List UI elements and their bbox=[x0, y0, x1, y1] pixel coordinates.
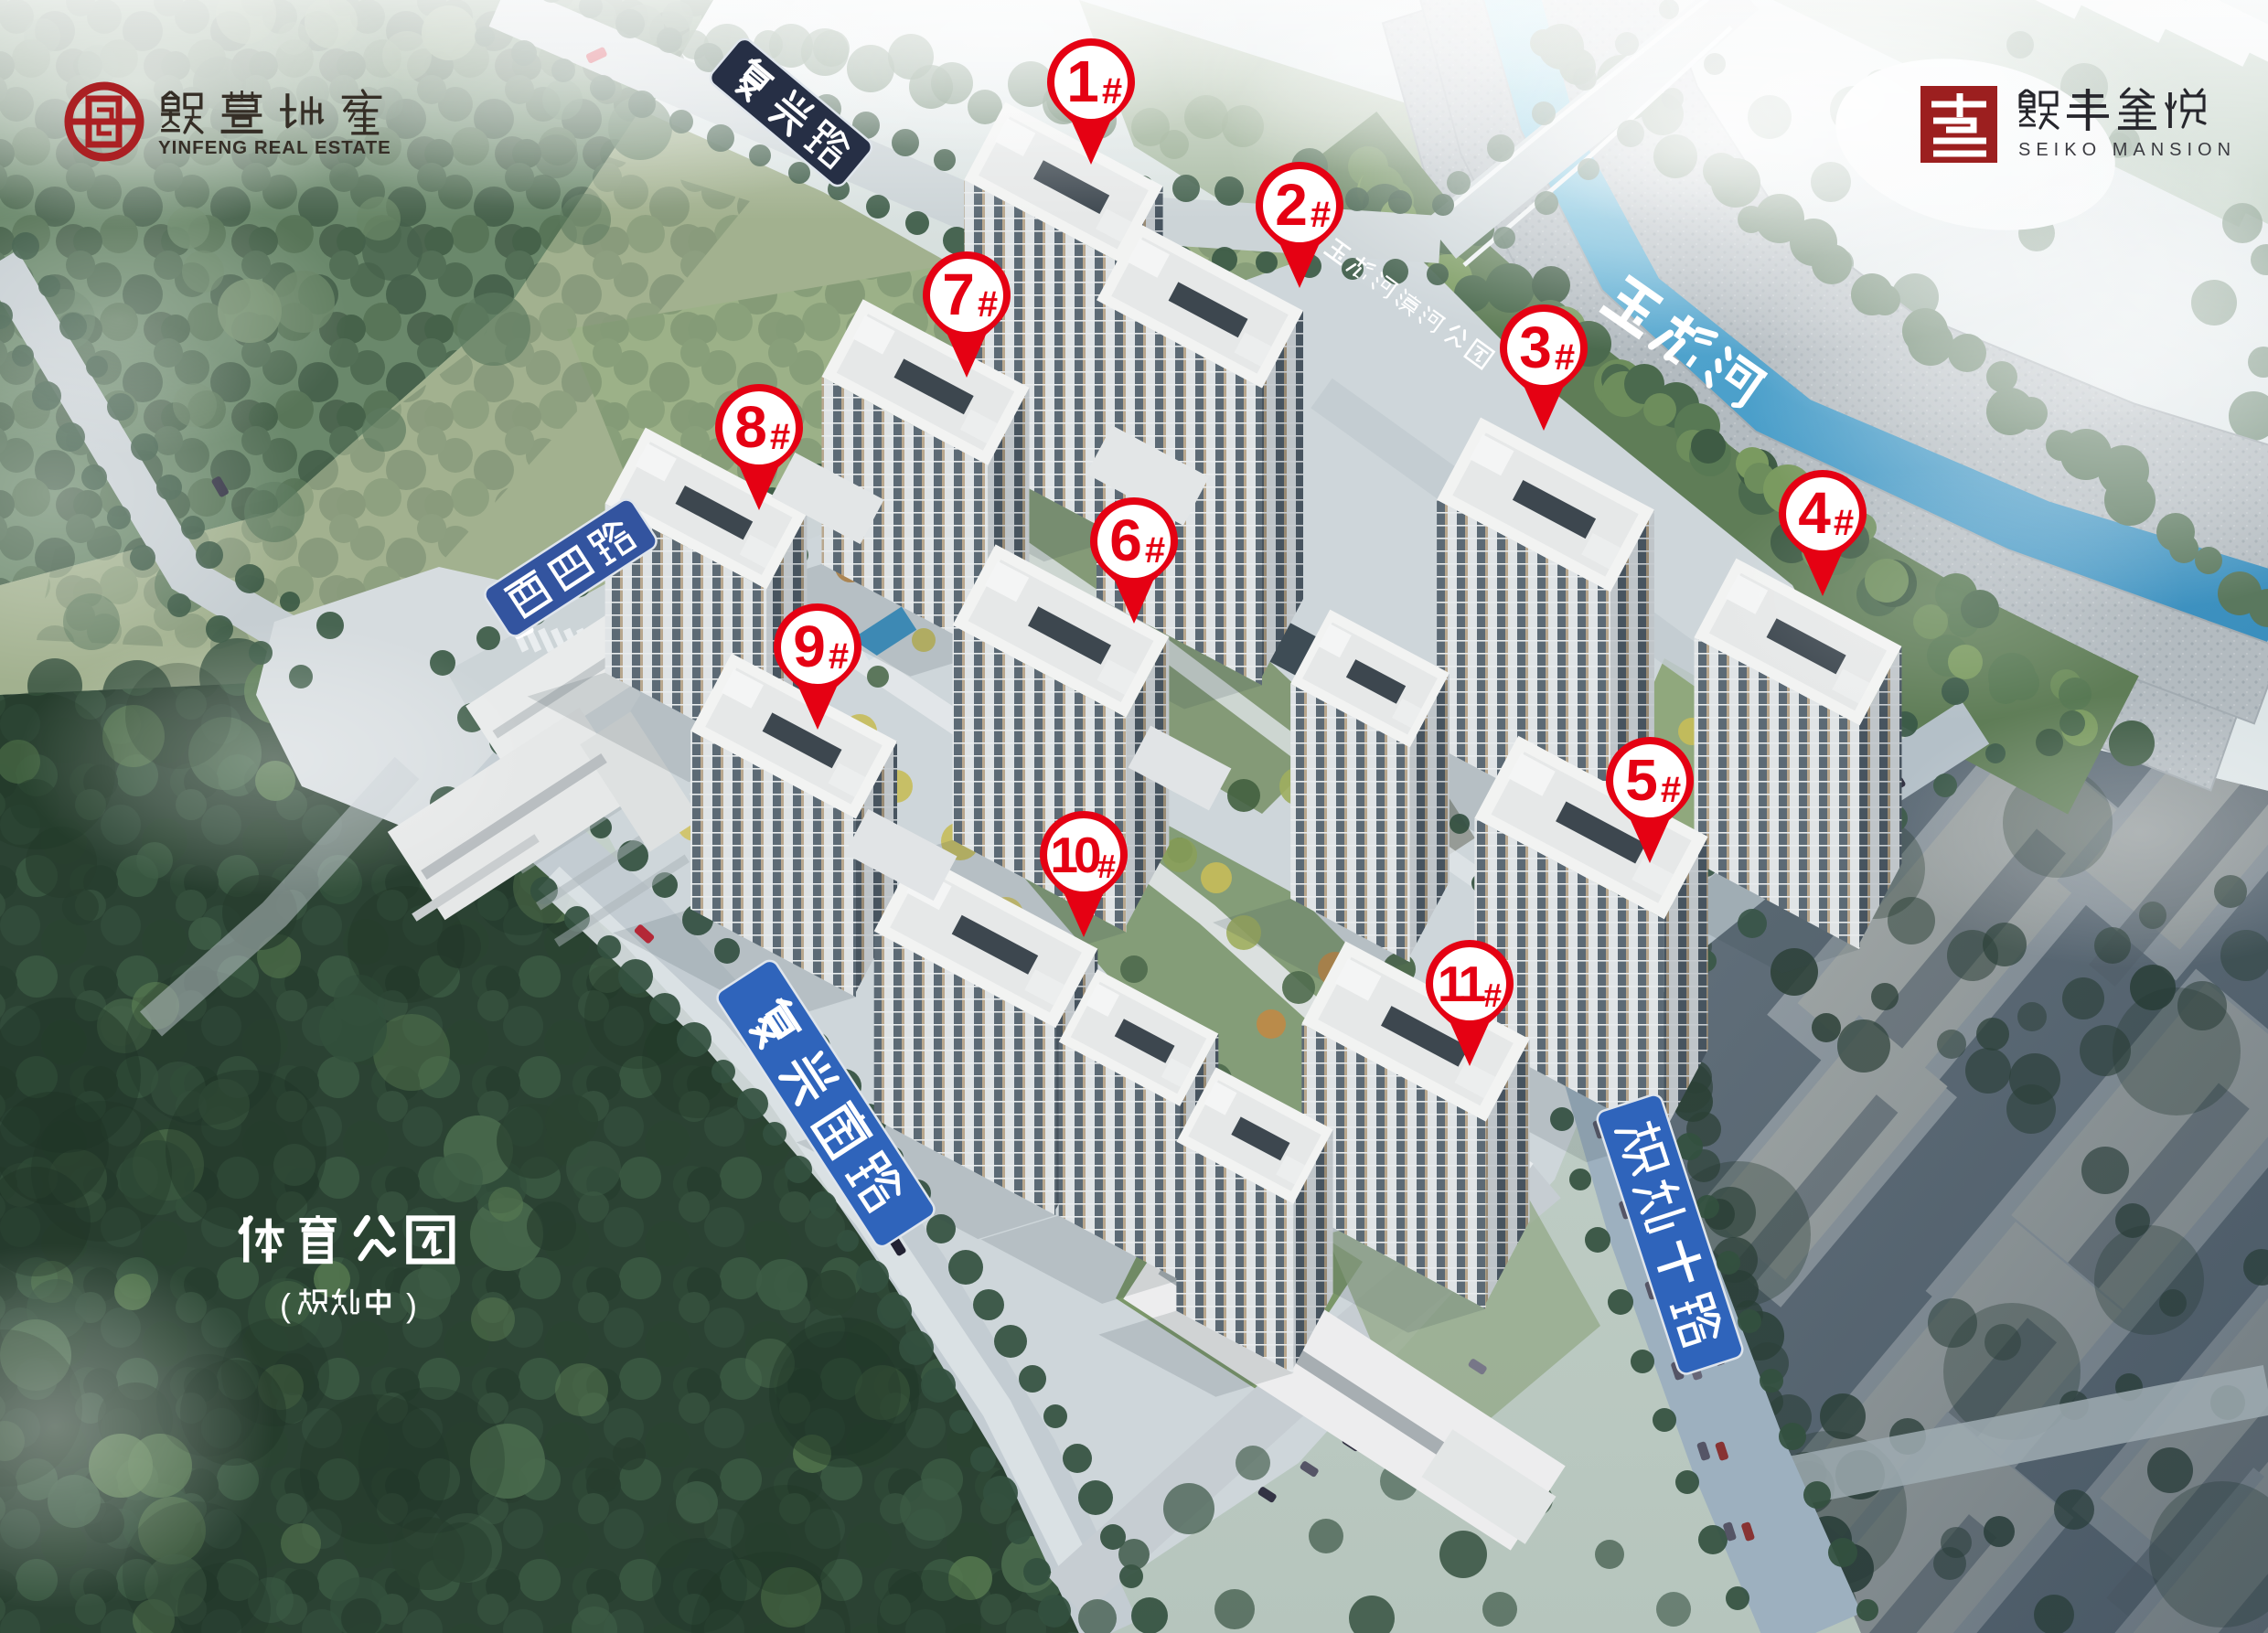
svg-text:#: # bbox=[829, 636, 849, 677]
svg-text:#: # bbox=[1834, 503, 1854, 543]
svg-text:4: 4 bbox=[1798, 480, 1831, 546]
svg-text:#: # bbox=[1661, 770, 1681, 810]
svg-text:#: # bbox=[1483, 977, 1502, 1014]
svg-text:#: # bbox=[1555, 337, 1575, 378]
svg-text:#: # bbox=[1145, 530, 1165, 571]
svg-text:9: 9 bbox=[793, 614, 826, 679]
svg-text:7: 7 bbox=[942, 261, 975, 327]
svg-text:5: 5 bbox=[1625, 747, 1658, 813]
svg-text:#: # bbox=[1311, 195, 1331, 235]
svg-text:2: 2 bbox=[1275, 172, 1308, 238]
svg-text:#: # bbox=[978, 284, 998, 325]
svg-text:3: 3 bbox=[1519, 315, 1552, 380]
svg-text:8: 8 bbox=[734, 394, 767, 460]
svg-text:#: # bbox=[1102, 71, 1122, 112]
svg-text:10: 10 bbox=[1050, 827, 1100, 883]
svg-text:6: 6 bbox=[1109, 507, 1142, 573]
svg-text:1: 1 bbox=[1066, 48, 1099, 114]
svg-text:(: ( bbox=[280, 1286, 291, 1324]
svg-text:#: # bbox=[1097, 848, 1116, 885]
svg-text:YINFENG REAL ESTATE: YINFENG REAL ESTATE bbox=[158, 137, 391, 158]
svg-text:SEIKO MANSION: SEIKO MANSION bbox=[2018, 140, 2236, 160]
svg-text:#: # bbox=[770, 417, 790, 457]
svg-text:11: 11 bbox=[1438, 955, 1486, 1012]
svg-text:): ) bbox=[406, 1286, 417, 1324]
